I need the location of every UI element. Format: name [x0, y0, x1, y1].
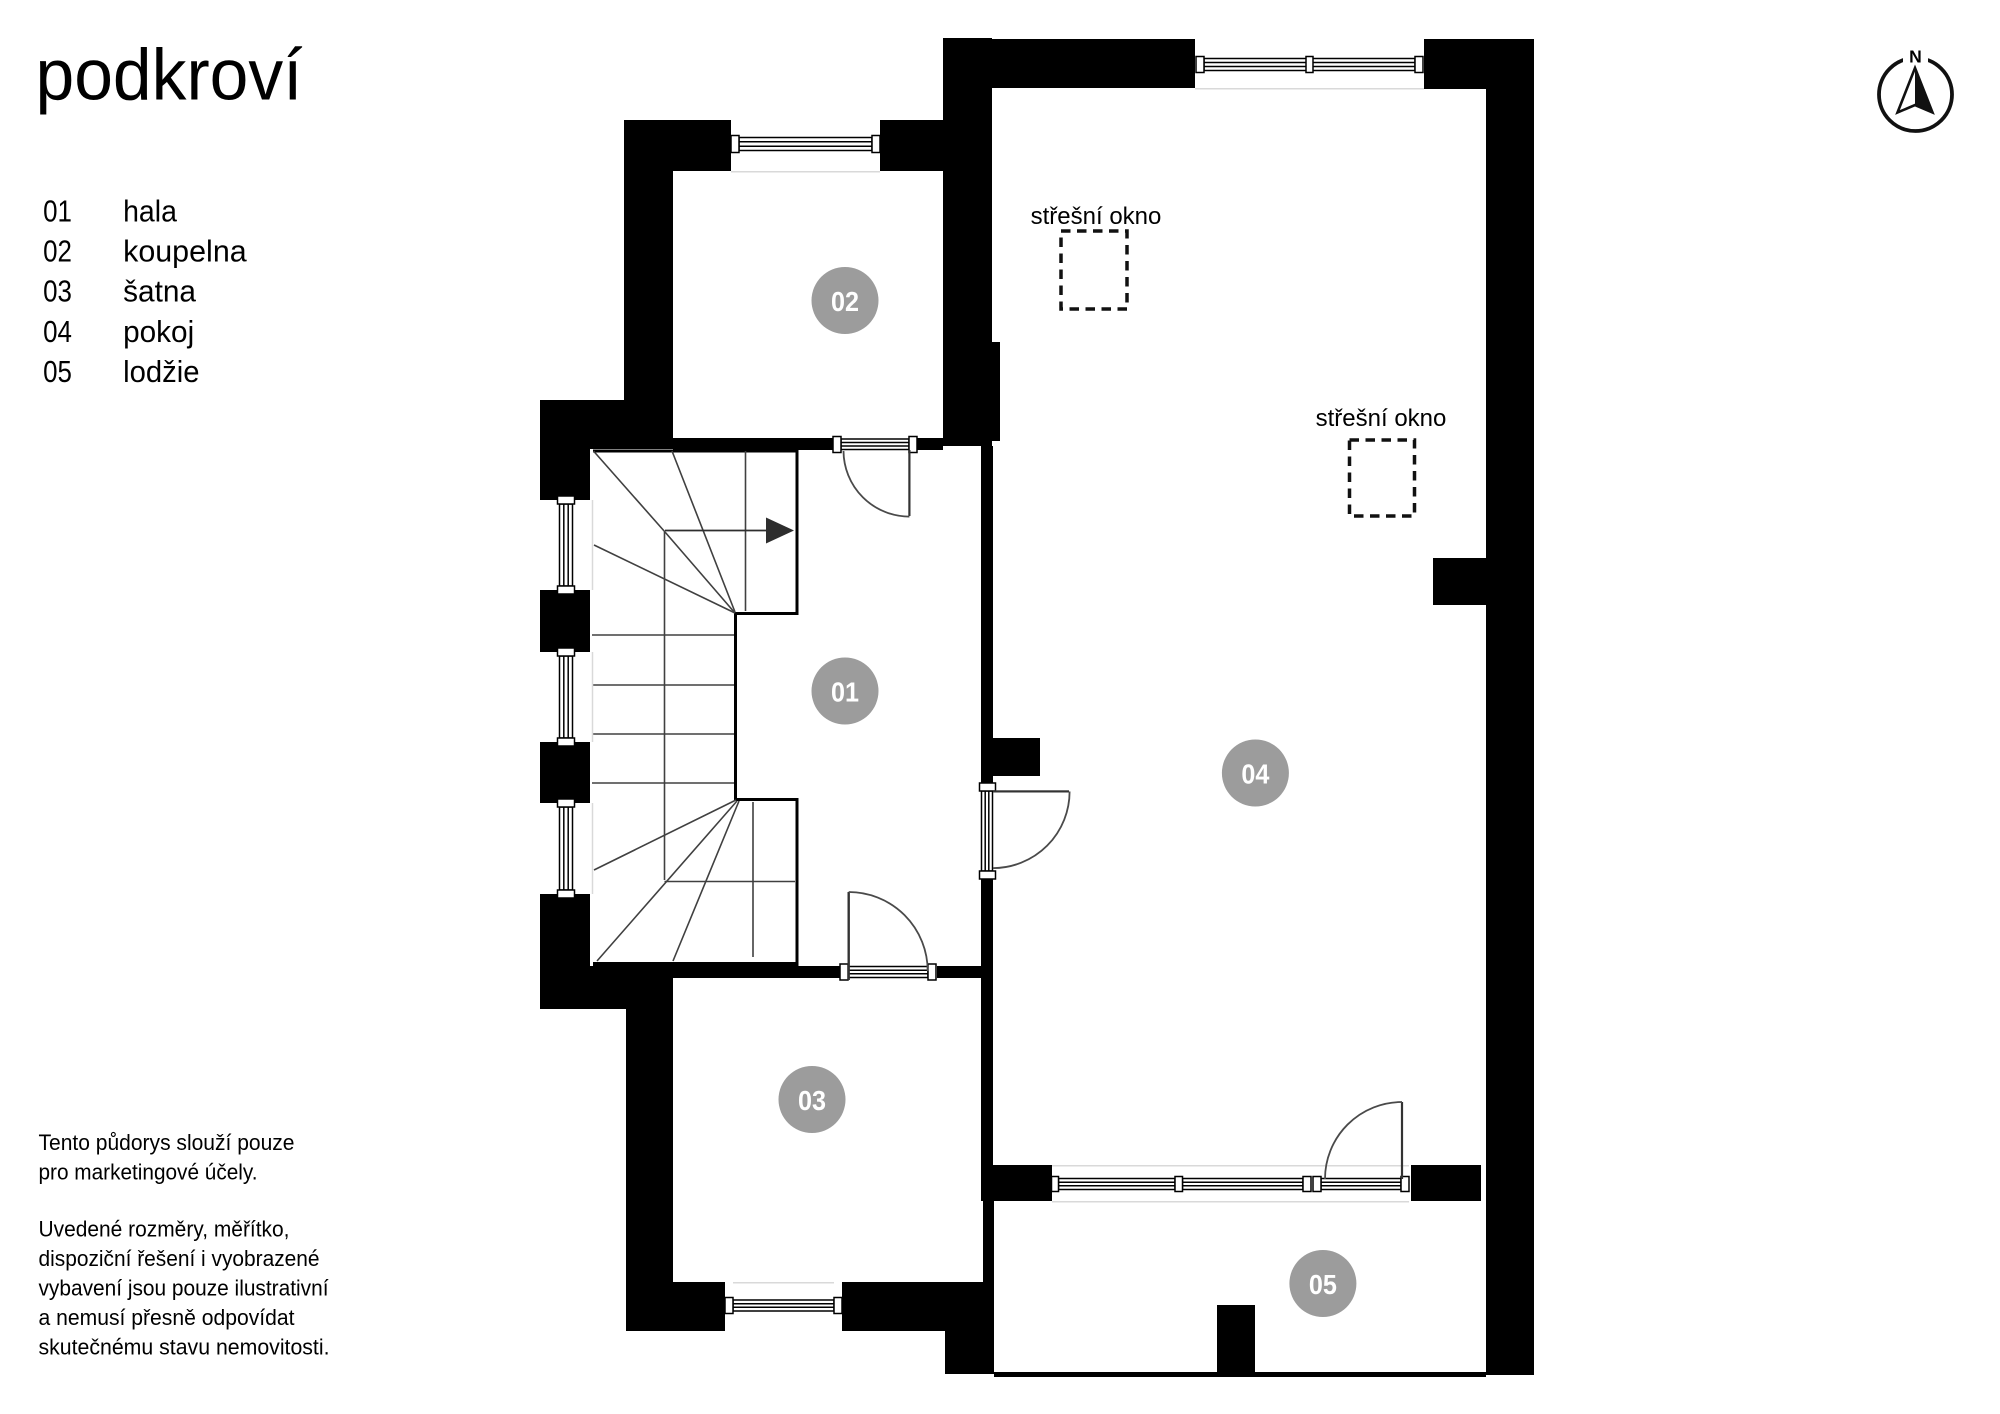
- svg-text:šatna: šatna: [123, 274, 197, 309]
- svg-text:01: 01: [43, 193, 72, 228]
- svg-text:03: 03: [798, 1085, 826, 1116]
- svg-text:05: 05: [1309, 1269, 1337, 1300]
- svg-text:lodžie: lodžie: [123, 354, 199, 389]
- svg-text:N: N: [1909, 47, 1922, 67]
- svg-text:dispoziční řešení i vyobrazené: dispoziční řešení i vyobrazené: [39, 1246, 320, 1271]
- svg-text:04: 04: [43, 314, 72, 349]
- svg-text:skutečnému stavu nemovitosti.: skutečnému stavu nemovitosti.: [39, 1335, 330, 1360]
- svg-text:vybavení jsou pouze ilustrativ: vybavení jsou pouze ilustrativní: [39, 1276, 329, 1301]
- svg-text:Tento půdorys slouží pouze: Tento půdorys slouží pouze: [39, 1130, 295, 1155]
- svg-text:střešní okno: střešní okno: [1031, 203, 1162, 230]
- svg-text:střešní okno: střešní okno: [1316, 405, 1447, 432]
- svg-text:koupelna: koupelna: [123, 234, 247, 269]
- svg-text:pro marketingové účely.: pro marketingové účely.: [39, 1160, 258, 1185]
- svg-text:hala: hala: [123, 193, 177, 228]
- svg-text:05: 05: [43, 354, 72, 389]
- svg-text:02: 02: [43, 234, 72, 269]
- svg-text:podkroví: podkroví: [36, 36, 303, 116]
- svg-text:02: 02: [831, 286, 859, 317]
- svg-text:01: 01: [831, 677, 859, 708]
- svg-text:04: 04: [1241, 759, 1269, 790]
- svg-text:03: 03: [43, 274, 72, 309]
- svg-text:a nemusí přesně odpovídat: a nemusí přesně odpovídat: [39, 1305, 295, 1330]
- svg-text:Uvedené rozměry, měřítko,: Uvedené rozměry, měřítko,: [39, 1217, 290, 1242]
- svg-text:pokoj: pokoj: [123, 314, 194, 349]
